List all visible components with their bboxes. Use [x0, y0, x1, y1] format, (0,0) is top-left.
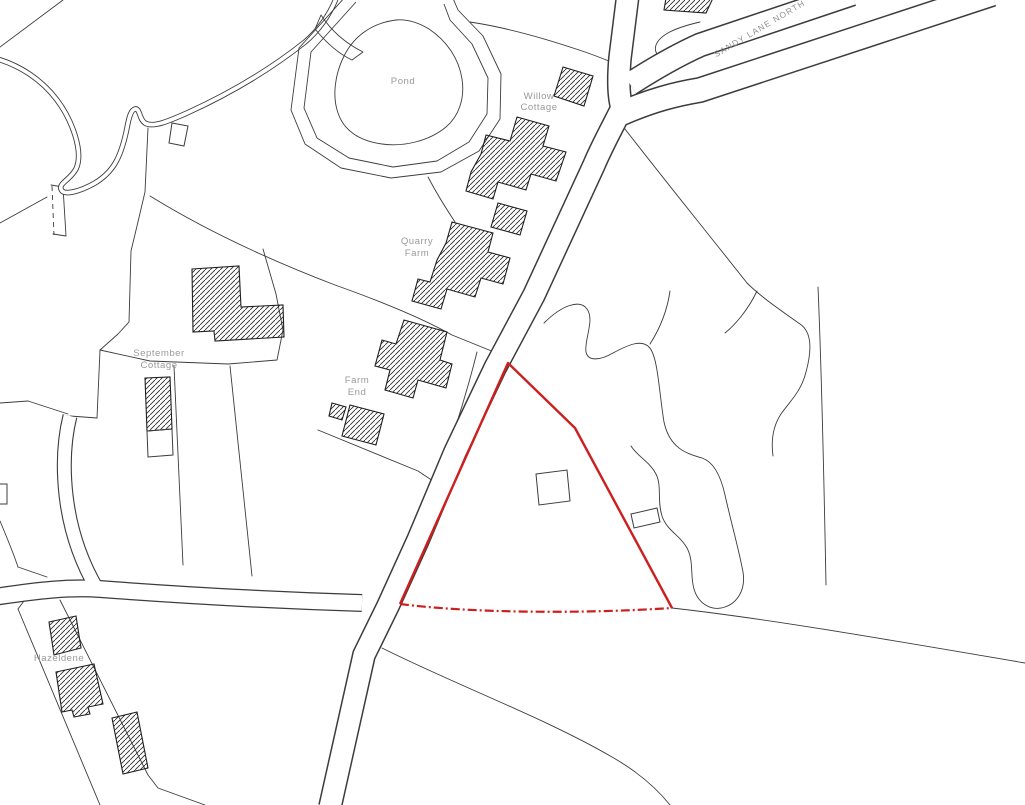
boundary-left-short — [0, 197, 47, 223]
boundary-junction-southeast — [618, 120, 747, 283]
structures — [0, 123, 660, 528]
boundary-top-left-diagonal — [0, 0, 63, 47]
boundary-willow-north — [470, 22, 622, 67]
building-farm-end-main — [342, 405, 384, 445]
structure-in-site-square — [536, 470, 570, 505]
building-quarry-farm-north — [491, 203, 527, 235]
site-plan-svg: Pond Willow Cottage Quarry Farm Farm End… — [0, 0, 1025, 805]
structure-east-small — [631, 508, 660, 528]
label-willow-cottage-line1: Willow — [524, 91, 555, 102]
west-road-surface — [0, 588, 362, 603]
structure-september-extension — [147, 429, 173, 457]
woodland-corridor-right — [725, 291, 757, 333]
building-september-cottage-main — [192, 266, 284, 341]
boundary-site-south-extension — [672, 608, 1025, 663]
stream-casing — [0, 0, 337, 193]
building-quarry-farm-lower — [375, 320, 452, 398]
building-hazeldene-south — [112, 712, 148, 774]
building-willow-cottage-main — [466, 117, 566, 199]
label-september-cottage-line2: Cottage — [140, 360, 177, 371]
label-farm-end-line1: Farm — [345, 375, 369, 386]
boundary-far-right — [818, 287, 826, 585]
boundary-left-lower — [0, 521, 18, 567]
label-farm-end-line2: End — [348, 387, 367, 398]
label-hazeldene: Hazeldene — [34, 653, 84, 664]
boundary-parcel-a — [174, 366, 183, 565]
boundary-right-arm — [747, 283, 810, 456]
building-hazeldene-main — [56, 664, 103, 717]
boundary-pond-to-farm — [428, 177, 455, 222]
building-september-cottage-annex — [145, 377, 172, 431]
label-willow-cottage-line2: Cottage — [520, 102, 557, 113]
boundary-left-edge-a — [0, 401, 28, 403]
building-top-right — [664, 0, 713, 13]
label-pond: Pond — [391, 76, 415, 87]
boundary-left-edge-b — [28, 401, 68, 414]
north-lane-surface — [64, 416, 97, 589]
site-boundary-south-edge — [400, 604, 672, 612]
structure-left-edge-small — [0, 484, 7, 504]
boundary-parcel-b — [230, 366, 252, 576]
label-september-cottage-line1: September — [133, 348, 185, 359]
boundary-sliver-dashed-edge — [52, 186, 54, 235]
woodland-outline — [544, 304, 744, 608]
site-plan-map: Pond Willow Cottage Quarry Farm Farm End… — [0, 0, 1025, 805]
woodland-corridor-left — [650, 291, 670, 344]
label-quarry-farm-line1: Quarry — [401, 236, 433, 247]
building-willow-cottage-outbuilding — [554, 67, 593, 106]
building-hazeldene-north — [49, 616, 81, 655]
building-farm-end-shed — [329, 403, 346, 420]
boundary-curve-bottom-right — [382, 648, 670, 805]
boundary-junction-west — [18, 567, 47, 577]
label-quarry-farm-line2: Farm — [405, 248, 429, 259]
main-road-surface — [330, 0, 628, 805]
boundary-september-west — [97, 128, 148, 418]
structure-northwest-small — [169, 123, 188, 146]
